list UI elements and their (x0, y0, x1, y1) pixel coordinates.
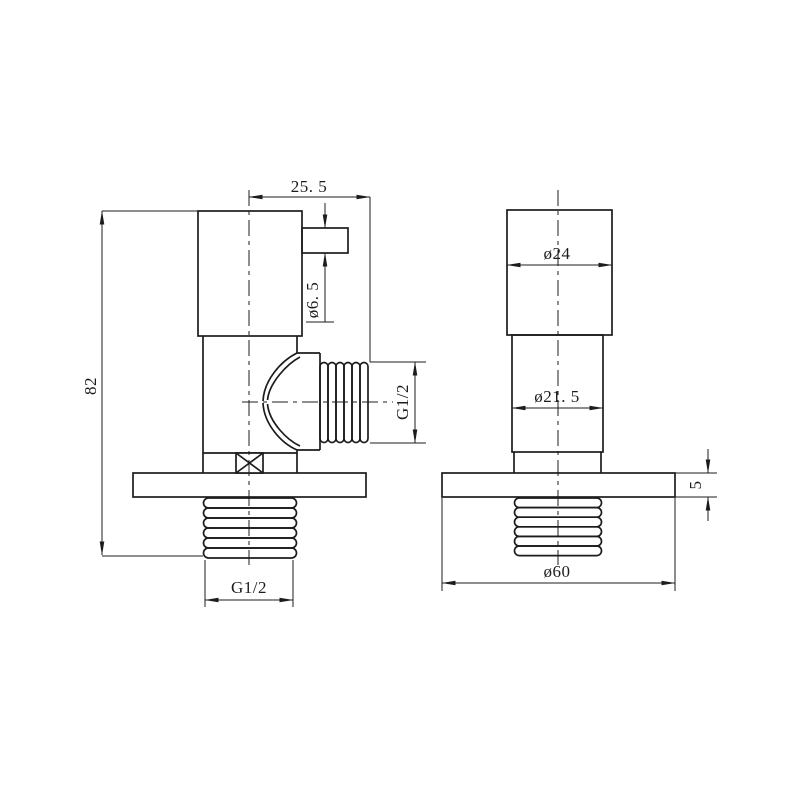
technical-drawing: 25. 5 ø6. 5 82 G1/2 G1/2 (0, 0, 800, 800)
dim-inlet-thread: G1/2 (205, 560, 293, 607)
dim-top-width: 25. 5 (249, 177, 370, 362)
dim-handle-diameter: ø24 (507, 244, 612, 265)
dim-label-top-width: 25. 5 (291, 177, 328, 196)
dim-label-outlet-thread: G1/2 (393, 384, 412, 420)
dim-outlet-bore: ø6. 5 (303, 203, 334, 322)
right-view: ø24 ø21. 5 5 ø60 (442, 190, 717, 591)
drawing-sheet: 25. 5 ø6. 5 82 G1/2 G1/2 (0, 0, 800, 800)
dim-label-inlet-thread: G1/2 (231, 578, 267, 597)
dim-label-handle-diameter: ø24 (544, 244, 571, 263)
dim-label-overall-height: 82 (81, 377, 100, 395)
left-view: 25. 5 ø6. 5 82 G1/2 G1/2 (81, 177, 426, 607)
dim-outlet-thread: G1/2 (370, 362, 426, 443)
dim-label-outlet-bore: ø6. 5 (303, 282, 322, 319)
inlet-thread (204, 498, 297, 558)
dim-body-diameter: ø21. 5 (512, 387, 603, 408)
outlet-stub-outline (302, 228, 348, 253)
dim-overall-height: 82 (81, 211, 250, 556)
dim-label-flange-thickness: 5 (686, 481, 705, 490)
front-handle-outline (507, 210, 612, 335)
dim-label-body-diameter: ø21. 5 (534, 387, 580, 406)
dim-flange-thickness: 5 (675, 449, 717, 521)
dim-label-flange-diameter: ø60 (544, 562, 571, 581)
valve-handle-outline (198, 211, 302, 336)
